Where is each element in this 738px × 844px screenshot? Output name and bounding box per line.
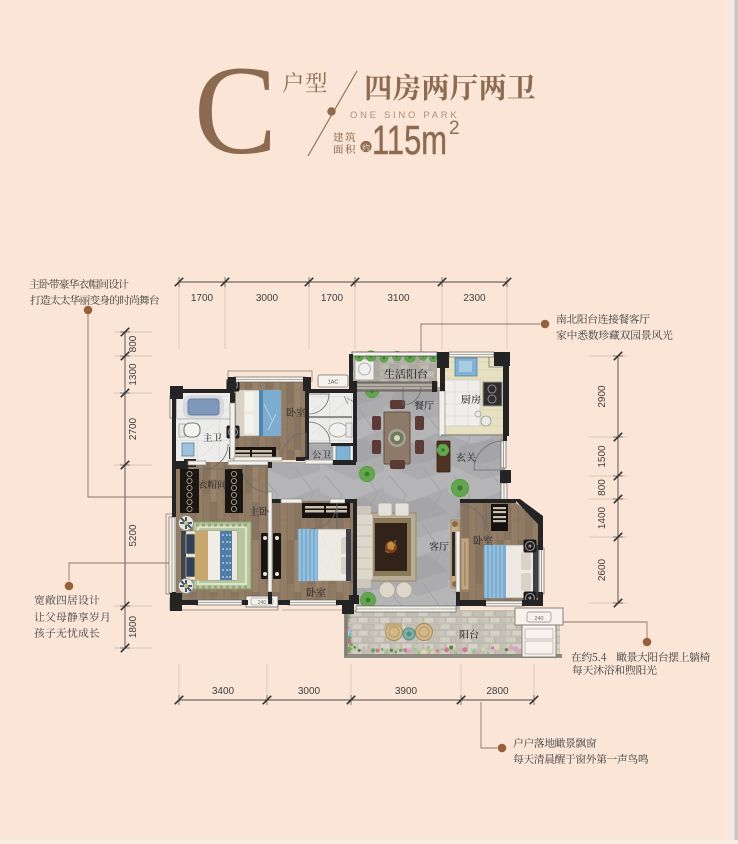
svg-text:1400: 1400 <box>597 506 608 529</box>
svg-text:2300: 2300 <box>463 293 486 304</box>
svg-text:240: 240 <box>258 600 267 606</box>
svg-text:1800: 1800 <box>128 615 139 638</box>
svg-text:2800: 2800 <box>486 686 509 697</box>
svg-text:1AC: 1AC <box>328 380 339 386</box>
svg-text:2900: 2900 <box>597 385 608 408</box>
svg-text:3000: 3000 <box>256 293 279 304</box>
svg-text:240: 240 <box>534 616 543 622</box>
svg-text:2700: 2700 <box>128 417 139 440</box>
svg-text:1300: 1300 <box>128 363 139 386</box>
svg-text:2600: 2600 <box>597 558 608 581</box>
svg-text:1700: 1700 <box>321 293 344 304</box>
svg-text:115m: 115m <box>372 117 447 163</box>
svg-text:3000: 3000 <box>298 686 321 697</box>
svg-text:2: 2 <box>449 118 460 139</box>
svg-text:800: 800 <box>128 335 139 352</box>
svg-text:1700: 1700 <box>191 293 214 304</box>
svg-text:3900: 3900 <box>395 686 418 697</box>
svg-text:C: C <box>194 41 277 181</box>
svg-text:1500: 1500 <box>597 445 608 468</box>
svg-text:5200: 5200 <box>128 524 139 547</box>
svg-text:3400: 3400 <box>212 686 235 697</box>
svg-text:800: 800 <box>597 479 608 496</box>
svg-text:3100: 3100 <box>387 293 410 304</box>
